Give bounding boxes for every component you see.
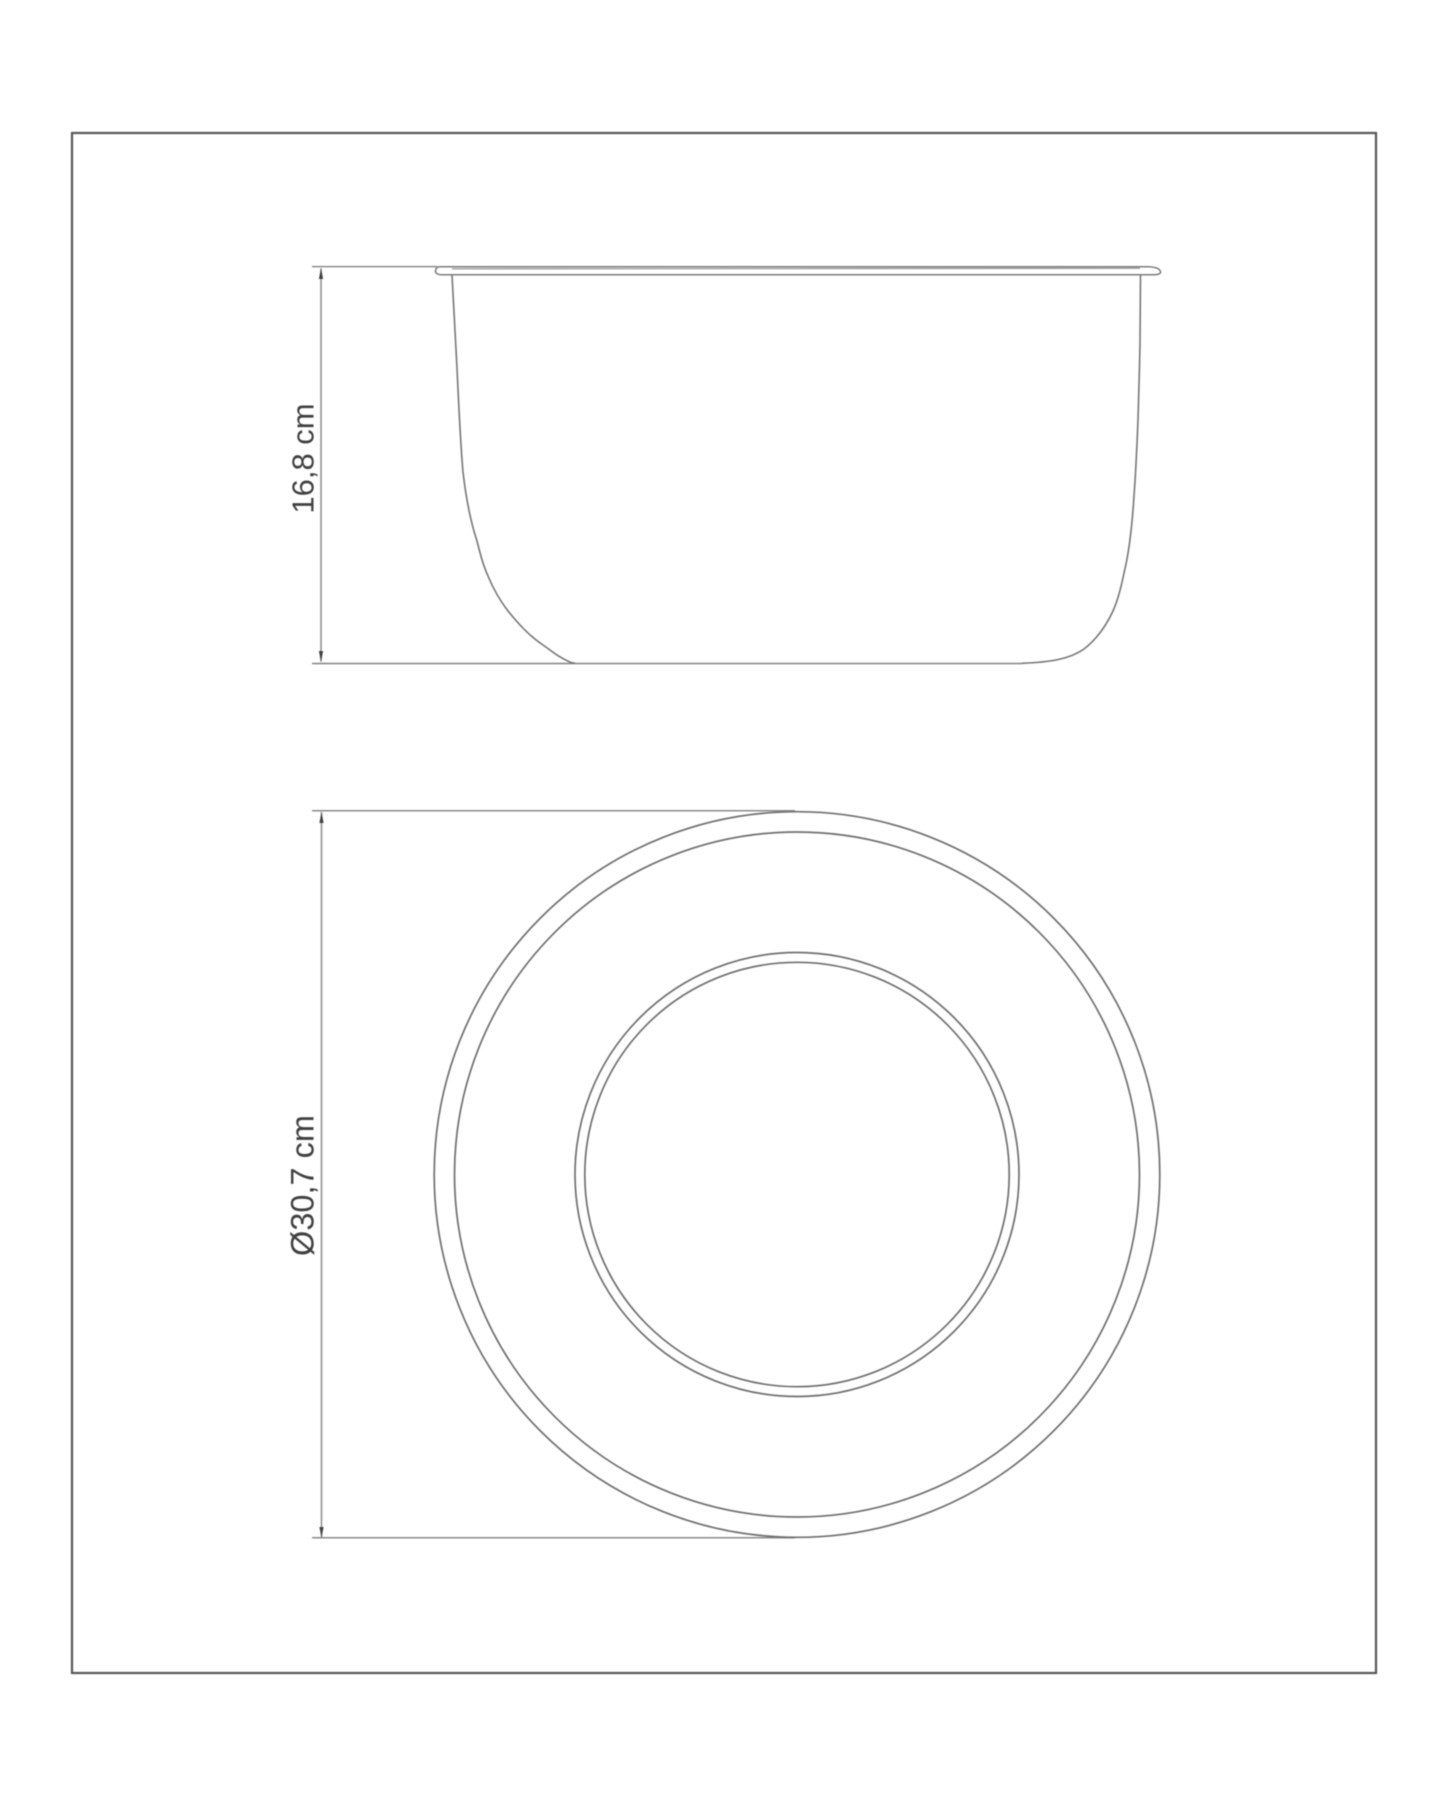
svg-text:Ø30,7 cm: Ø30,7 cm: [285, 1115, 321, 1256]
svg-text:16,8 cm: 16,8 cm: [286, 403, 321, 513]
